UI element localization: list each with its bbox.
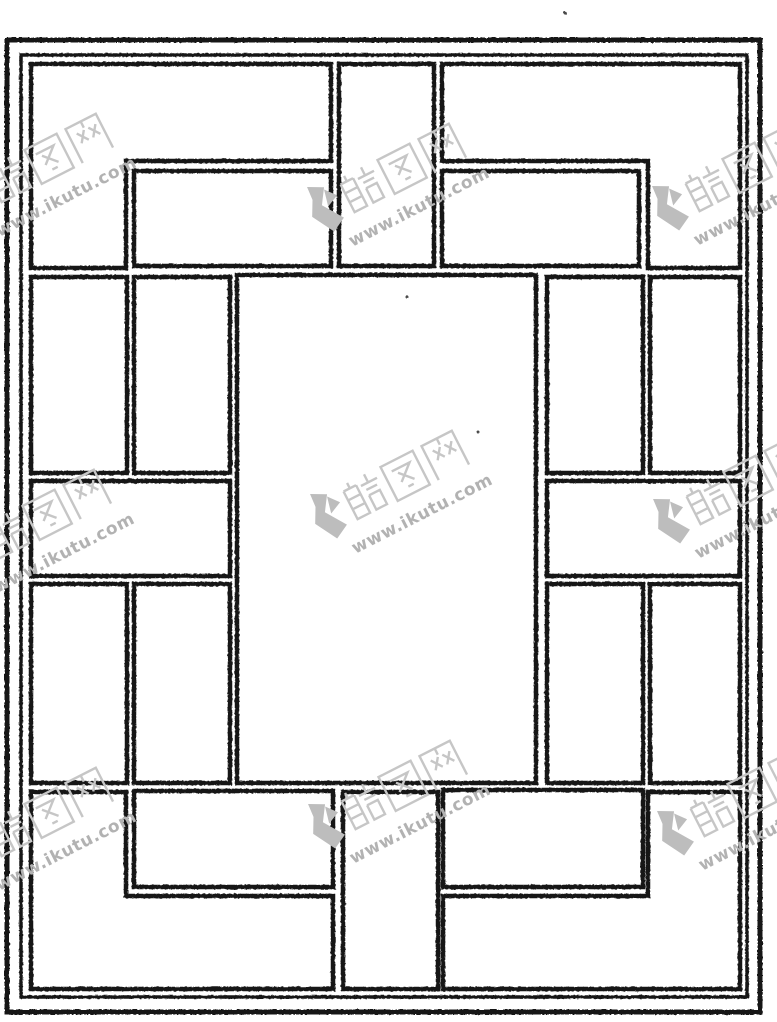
lattice-panel [547, 277, 643, 473]
lattice-l-panel [31, 64, 331, 268]
lattice-panel [443, 790, 643, 887]
window-lattice-drawing [0, 0, 777, 1022]
lattice-panel [31, 481, 230, 576]
ink-speck [564, 12, 567, 15]
lattice-panel [134, 584, 230, 783]
lattice-pattern-image: www.ikutu.com www.ikutu.com [0, 0, 777, 1022]
lattice-panel [442, 171, 639, 266]
lattice-panel [547, 584, 643, 783]
lattice-panel [134, 171, 331, 266]
lattice-panel [134, 277, 230, 473]
lattice-panel [343, 792, 438, 989]
lattice-panel [339, 64, 434, 266]
lattice-panel [547, 481, 740, 576]
lattice-l-panel [443, 792, 740, 989]
lattice-l-panel [442, 64, 740, 268]
lattice-panel [31, 277, 127, 473]
ink-speck [406, 296, 409, 299]
lattice-panel [650, 584, 740, 783]
lattice-panel [650, 277, 740, 473]
lattice-panel [134, 791, 333, 887]
ink-speck [477, 431, 480, 434]
lattice-panel [31, 584, 127, 783]
lattice-panel [237, 275, 536, 783]
lattice-l-panel [31, 792, 333, 989]
